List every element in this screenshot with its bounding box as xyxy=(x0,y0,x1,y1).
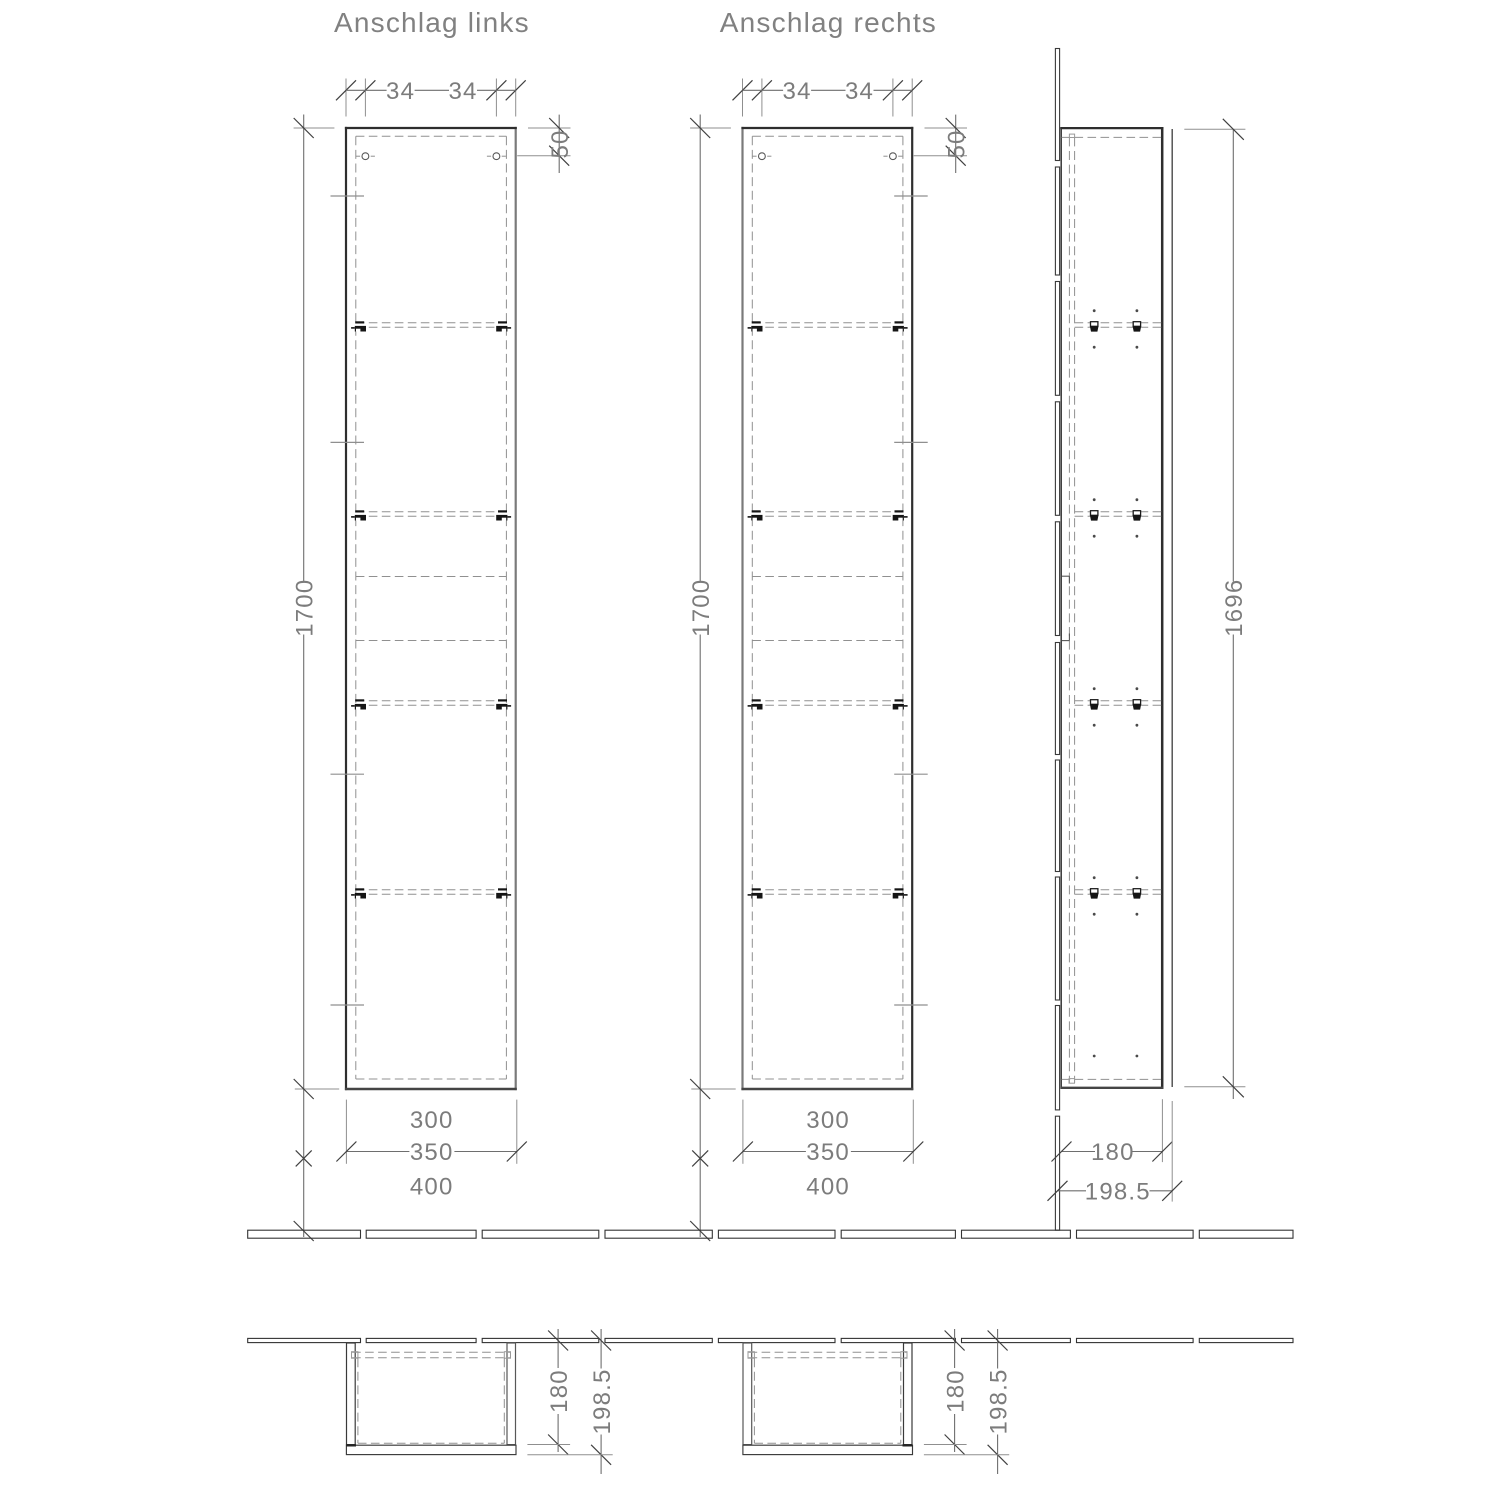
svg-text:34: 34 xyxy=(783,78,812,105)
svg-text:180: 180 xyxy=(546,1369,573,1413)
svg-text:34: 34 xyxy=(386,78,415,105)
svg-text:34: 34 xyxy=(845,78,874,105)
svg-text:180: 180 xyxy=(943,1369,970,1413)
svg-text:180: 180 xyxy=(1091,1139,1135,1166)
svg-text:400: 400 xyxy=(410,1174,454,1201)
svg-text:50: 50 xyxy=(944,129,971,158)
svg-text:Anschlag links: Anschlag links xyxy=(334,7,530,38)
svg-text:350: 350 xyxy=(806,1139,850,1166)
svg-text:198.5: 198.5 xyxy=(589,1368,616,1434)
svg-text:34: 34 xyxy=(448,78,477,105)
svg-text:198.5: 198.5 xyxy=(986,1368,1013,1434)
svg-text:300: 300 xyxy=(410,1107,454,1134)
svg-text:50: 50 xyxy=(547,129,574,158)
svg-text:1696: 1696 xyxy=(1221,579,1248,637)
svg-text:350: 350 xyxy=(410,1139,454,1166)
svg-text:1700: 1700 xyxy=(688,579,715,637)
svg-text:Anschlag rechts: Anschlag rechts xyxy=(720,7,937,38)
svg-text:198.5: 198.5 xyxy=(1085,1178,1151,1205)
svg-text:300: 300 xyxy=(806,1107,850,1134)
svg-text:400: 400 xyxy=(806,1174,850,1201)
svg-text:1700: 1700 xyxy=(292,579,319,637)
